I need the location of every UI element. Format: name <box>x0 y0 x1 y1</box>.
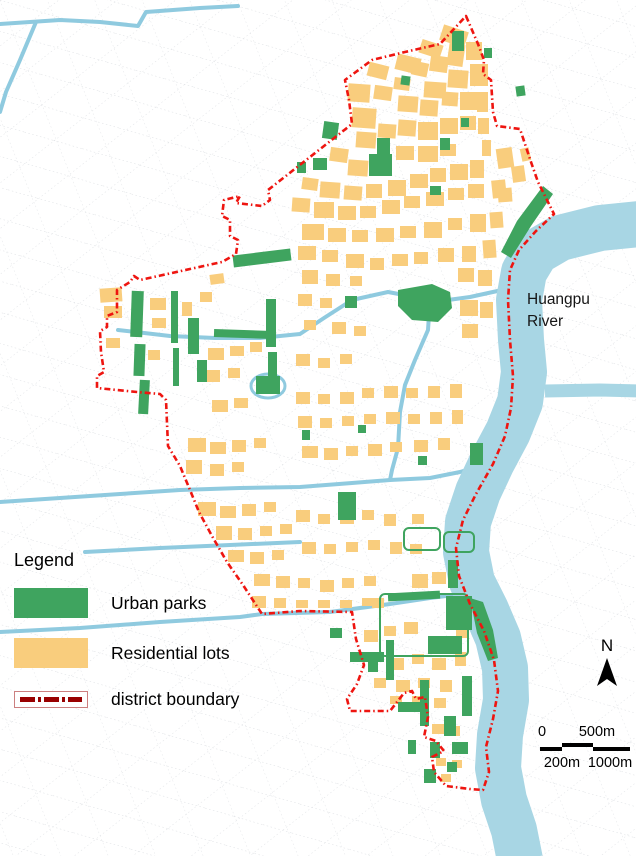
residential-lot <box>370 258 384 270</box>
scale-segment-3 <box>593 747 630 751</box>
residential-lot <box>280 524 292 534</box>
urban-park <box>338 492 356 520</box>
residential-lot <box>418 122 438 140</box>
residential-lot <box>460 300 478 316</box>
urban-park <box>130 291 144 337</box>
residential-lot <box>198 502 216 516</box>
residential-lot <box>351 107 376 129</box>
residential-lot <box>392 254 408 266</box>
residential-lot <box>346 542 358 552</box>
residential-lot <box>232 440 246 452</box>
residential-lot <box>346 446 358 456</box>
urban-park <box>424 769 436 783</box>
scale-bar: 0 500m 200m 1000m <box>540 724 634 772</box>
scale-bar-track <box>540 743 630 751</box>
residential-lot <box>430 412 442 424</box>
residential-lot <box>438 438 450 450</box>
residential-lot <box>478 270 492 286</box>
residential-lot <box>390 542 402 554</box>
urban-park <box>461 118 469 127</box>
residential-lot <box>355 131 376 148</box>
legend-title: Legend <box>14 550 74 571</box>
district-boundary-swatch <box>14 691 88 708</box>
urban-park <box>452 31 464 51</box>
residential-lot <box>386 412 400 424</box>
urban-park <box>462 676 472 716</box>
residential-lot <box>210 442 226 454</box>
residential-lot <box>318 394 330 404</box>
residential-lot <box>304 320 316 330</box>
urban-park <box>171 291 178 343</box>
residential-lot <box>478 118 489 134</box>
urban-park <box>452 742 468 754</box>
residential-lot <box>384 514 396 526</box>
residential-lot <box>396 680 410 692</box>
residential-lot <box>470 214 486 232</box>
residential-lot <box>430 168 446 182</box>
residential-lot <box>318 600 330 608</box>
residential-lot <box>188 438 206 452</box>
residential-lot <box>450 164 468 180</box>
urban-park <box>386 640 394 680</box>
urban-park <box>188 318 199 354</box>
residential-lot <box>406 388 418 398</box>
residential-lot <box>320 580 334 592</box>
residential-lot <box>318 514 330 524</box>
residential-lot <box>274 598 286 608</box>
residential-lot <box>250 342 262 352</box>
residential-lot <box>496 147 515 169</box>
residential-lot <box>350 276 362 286</box>
residential-lot <box>400 226 416 238</box>
residential-lot <box>100 287 123 303</box>
residential-lot <box>264 502 276 512</box>
district-boundary-swatch-line <box>20 697 82 702</box>
residential-lot <box>404 196 420 208</box>
residential-lot <box>272 550 284 560</box>
urban-park <box>444 716 456 736</box>
residential-lot <box>232 462 244 472</box>
residential-lot <box>364 414 376 424</box>
residential-lot <box>209 273 224 285</box>
urban-park <box>197 360 207 382</box>
residential-lot <box>230 346 244 356</box>
scale-tick-1000m: 1000m <box>588 755 632 771</box>
residential-lot <box>441 774 451 782</box>
residential-lot <box>342 578 354 588</box>
urban-park <box>133 344 145 376</box>
residential-lot <box>432 572 446 584</box>
residential-lot <box>368 444 382 456</box>
urban-park <box>266 299 276 347</box>
residential-lot <box>378 123 397 138</box>
residential-lot <box>489 212 503 229</box>
residential-lot <box>338 206 356 220</box>
residential-lot <box>366 184 382 198</box>
residential-lot <box>429 55 449 73</box>
urban-park <box>369 154 392 176</box>
urban-park <box>440 138 450 150</box>
residential-lot <box>382 200 400 214</box>
urban-park <box>256 376 280 394</box>
residential-lot <box>388 180 406 196</box>
scale-tick-500m: 500m <box>579 724 615 740</box>
residential-lot <box>186 460 202 474</box>
residential-lot <box>468 184 484 198</box>
residential-lot <box>326 274 340 286</box>
river-branch <box>545 390 636 391</box>
residential-lot <box>432 658 446 670</box>
residential-lot <box>238 528 252 540</box>
residential-lot <box>150 298 166 310</box>
urban-park <box>428 636 462 654</box>
scale-tick-200m: 200m <box>544 755 580 771</box>
residential-lot <box>298 578 310 588</box>
residential-lot <box>234 398 248 408</box>
scale-segment-1 <box>540 747 562 751</box>
residential-lot <box>362 388 374 398</box>
urban-park <box>313 158 327 170</box>
residential-lot <box>373 85 393 101</box>
residential-lot <box>450 384 462 398</box>
residential-lot <box>340 392 354 404</box>
scale-segment-2 <box>562 743 593 747</box>
residential-lot <box>216 526 232 540</box>
residential-lot <box>440 118 458 134</box>
urban-park <box>358 425 366 433</box>
residential-lot <box>329 147 349 163</box>
residential-lot <box>206 370 220 382</box>
residential-lot <box>212 400 228 412</box>
urban-park <box>398 702 424 712</box>
residential-lot <box>228 550 244 562</box>
residential-lot <box>455 652 466 666</box>
residential-lot <box>438 248 454 262</box>
residential-lot <box>210 464 224 476</box>
residential-lot <box>418 146 438 162</box>
residential-lot <box>458 268 474 282</box>
residential-lot <box>364 576 376 586</box>
residential-lot <box>298 294 312 306</box>
residential-lot <box>318 358 330 368</box>
residential-lot <box>448 218 462 230</box>
residential-lot <box>410 174 428 188</box>
residential-lot <box>414 252 428 264</box>
urban-park <box>418 456 427 465</box>
residential-lot <box>242 504 256 516</box>
residential-lot <box>347 83 370 102</box>
residential-lot <box>414 440 428 452</box>
residential-lot <box>482 140 491 156</box>
residential-lots-swatch <box>14 638 88 668</box>
residential-lot <box>477 92 488 112</box>
urban-park <box>430 186 441 195</box>
residential-lot <box>480 302 493 318</box>
urban-park <box>484 48 492 58</box>
residential-lot <box>347 159 368 176</box>
residential-lot <box>148 350 160 360</box>
urban-park <box>173 348 179 386</box>
residential-lot <box>322 250 338 262</box>
north-label: N <box>593 636 621 656</box>
residential-lot <box>296 510 310 522</box>
residential-lot <box>296 392 310 404</box>
residential-lot <box>362 510 374 520</box>
residential-lot <box>442 91 459 106</box>
residential-lot <box>397 95 418 112</box>
residential-lot <box>354 326 366 336</box>
district-boundary-label: district boundary <box>111 689 239 710</box>
north-indicator: N <box>593 636 621 693</box>
residential-lot <box>408 414 420 424</box>
residential-lot <box>182 302 192 316</box>
urban-parks-swatch <box>14 588 88 618</box>
residential-lot <box>344 185 363 200</box>
residential-lot <box>511 165 526 183</box>
residential-lot <box>352 230 368 242</box>
urban-park <box>470 443 483 465</box>
residential-lot <box>301 177 319 191</box>
residential-lot <box>328 228 346 242</box>
residential-lot <box>482 240 496 259</box>
residential-lot <box>374 678 386 688</box>
residential-lot <box>260 526 272 536</box>
residential-lot <box>302 542 316 554</box>
residential-lot <box>436 758 446 766</box>
residential-lot <box>302 224 324 240</box>
residential-lot <box>228 368 240 378</box>
residential-lot <box>340 600 352 608</box>
residential-lots-label: Residential lots <box>111 643 230 664</box>
residential-lot <box>324 448 338 460</box>
residential-lot <box>384 626 396 636</box>
residential-lot <box>320 418 332 428</box>
residential-lot <box>404 622 418 634</box>
residential-lot <box>412 574 428 588</box>
legend-item-residential-lots: Residential lots <box>14 638 230 668</box>
residential-lot <box>434 698 446 708</box>
urban-park <box>368 660 378 672</box>
residential-lot <box>152 318 166 328</box>
urban-park <box>138 380 150 414</box>
residential-lot <box>298 246 316 260</box>
residential-lot <box>440 680 452 692</box>
residential-lot <box>254 438 266 448</box>
residential-lot <box>320 298 332 308</box>
north-arrow-icon <box>594 658 620 688</box>
scale-tick-0: 0 <box>538 724 546 740</box>
residential-lot <box>324 544 336 554</box>
residential-lot <box>376 228 394 242</box>
urban-park <box>377 138 390 155</box>
residential-lot <box>254 574 270 586</box>
residential-lot <box>302 270 318 284</box>
urban-park <box>302 430 310 440</box>
residential-lot <box>276 576 290 588</box>
residential-lot <box>419 99 438 116</box>
residential-lot <box>292 197 311 212</box>
residential-lot <box>296 354 310 366</box>
river-label-line1: Huangpu <box>527 289 590 311</box>
residential-lot <box>396 146 414 160</box>
residential-lot <box>447 69 468 88</box>
urban-park <box>345 296 357 308</box>
urban-park <box>400 75 410 85</box>
residential-lot <box>462 324 478 338</box>
residential-lot <box>340 354 352 364</box>
residential-lot <box>470 160 484 178</box>
residential-lot <box>462 246 476 262</box>
residential-lot <box>448 188 464 200</box>
residential-lot <box>372 598 384 608</box>
residential-lot <box>428 386 440 398</box>
residential-lot <box>314 202 334 218</box>
urban-park <box>408 740 416 754</box>
residential-lot <box>250 552 264 564</box>
residential-lot <box>220 506 236 518</box>
residential-lot <box>296 600 308 608</box>
residential-lot <box>360 206 376 218</box>
residential-lot <box>368 540 380 550</box>
residential-lot <box>397 119 416 136</box>
residential-lot <box>342 416 354 426</box>
map-figure: Huangpu River Legend Urban parks Residen… <box>0 0 636 856</box>
urban-park <box>330 628 342 638</box>
residential-lot <box>364 630 378 642</box>
residential-lot <box>208 348 224 360</box>
residential-lot <box>298 416 312 428</box>
residential-lot <box>432 724 444 734</box>
legend-item-urban-parks: Urban parks <box>14 588 206 618</box>
residential-lot <box>424 222 442 238</box>
river-label: Huangpu River <box>527 289 590 332</box>
residential-lot <box>106 338 120 348</box>
residential-lot <box>332 322 346 334</box>
residential-lot <box>452 410 463 424</box>
residential-lot <box>319 181 340 198</box>
urban-park <box>447 762 457 772</box>
river-label-line2: River <box>527 311 590 333</box>
urban-parks-label: Urban parks <box>111 593 206 614</box>
residential-lot <box>346 254 364 268</box>
residential-lot <box>384 386 398 398</box>
legend-item-district-boundary: district boundary <box>14 689 239 710</box>
residential-lot <box>390 442 402 452</box>
urban-park <box>515 85 525 96</box>
residential-lot <box>491 179 507 198</box>
residential-lot <box>302 446 318 458</box>
residential-lot <box>200 292 212 302</box>
residential-lot <box>104 306 122 318</box>
urban-park <box>350 652 384 662</box>
residential-lot <box>412 514 424 524</box>
